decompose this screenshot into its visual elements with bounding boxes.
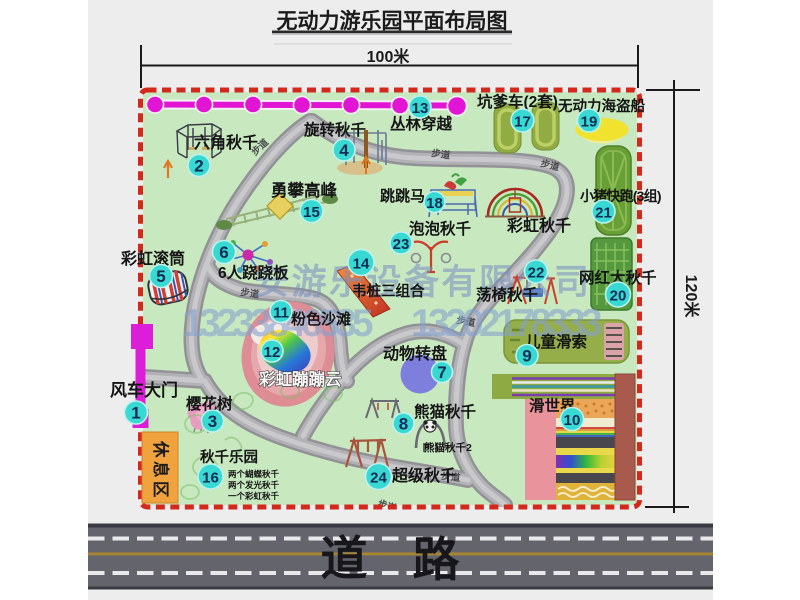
svg-text:3: 3 <box>208 412 217 431</box>
svg-text:两个发光秋千: 两个发光秋千 <box>228 480 280 490</box>
svg-text:两个蝴蝶秋千: 两个蝴蝶秋千 <box>228 469 280 479</box>
svg-text:20: 20 <box>610 288 627 305</box>
svg-text:勇攀高峰: 勇攀高峰 <box>271 180 338 200</box>
svg-text:8: 8 <box>399 415 408 434</box>
svg-text:彩虹蹦蹦云: 彩虹蹦蹦云 <box>258 369 342 389</box>
svg-text:22: 22 <box>528 265 545 282</box>
svg-text:风车大门: 风车大门 <box>110 380 178 400</box>
svg-text:6人跷跷板: 6人跷跷板 <box>218 263 289 282</box>
svg-text:彩虹滚筒: 彩虹滚筒 <box>120 249 185 268</box>
svg-text:21: 21 <box>595 205 612 222</box>
svg-text:100米: 100米 <box>367 47 411 66</box>
svg-text:18: 18 <box>426 195 443 212</box>
svg-text:彩虹秋千: 彩虹秋千 <box>506 216 571 235</box>
svg-text:道: 道 <box>321 532 368 585</box>
svg-text:10: 10 <box>564 412 581 429</box>
svg-text:泡泡秋千: 泡泡秋千 <box>409 219 472 238</box>
svg-text:无动力海盗船: 无动力海盗船 <box>558 97 645 115</box>
svg-text:7: 7 <box>437 363 446 382</box>
svg-text:韦桩三组合: 韦桩三组合 <box>352 282 425 300</box>
svg-text:15: 15 <box>303 204 320 221</box>
svg-text:粉色沙滩: 粉色沙滩 <box>291 310 351 328</box>
svg-text:2: 2 <box>194 157 203 176</box>
svg-text:熊猫秋千2: 熊猫秋千2 <box>424 441 472 454</box>
svg-text:1: 1 <box>131 404 140 423</box>
svg-text:六角秋千: 六角秋千 <box>194 133 258 152</box>
svg-text:荡椅秋千: 荡椅秋千 <box>476 285 539 304</box>
svg-text:路: 路 <box>413 533 461 586</box>
svg-text:24: 24 <box>370 470 387 487</box>
svg-text:5: 5 <box>156 267 165 286</box>
svg-text:11: 11 <box>273 305 289 322</box>
svg-text:跳跳马: 跳跳马 <box>380 187 425 205</box>
svg-text:14: 14 <box>353 256 370 273</box>
svg-text:4: 4 <box>339 141 349 160</box>
svg-text:秋千乐园: 秋千乐园 <box>200 448 258 466</box>
svg-text:6: 6 <box>219 243 228 262</box>
svg-text:旋转秋千: 旋转秋千 <box>303 120 367 139</box>
svg-text:17: 17 <box>514 114 531 131</box>
svg-text:坑爹车(2套): 坑爹车(2套) <box>477 92 558 111</box>
svg-text:休息区: 休息区 <box>151 440 171 501</box>
svg-text:熊猫秋千: 熊猫秋千 <box>414 402 477 421</box>
svg-text:超级秋千: 超级秋千 <box>391 466 456 485</box>
svg-text:23: 23 <box>393 236 410 253</box>
svg-text:12: 12 <box>264 344 281 361</box>
svg-text:一个彩虹秋千: 一个彩虹秋千 <box>228 491 280 501</box>
svg-text:13: 13 <box>412 100 429 117</box>
svg-text:无动力游乐园平面布局图: 无动力游乐园平面布局图 <box>277 9 508 33</box>
svg-text:19: 19 <box>581 114 598 131</box>
svg-text:动物转盘: 动物转盘 <box>383 344 447 363</box>
svg-text:9: 9 <box>522 347 531 366</box>
svg-text:16: 16 <box>202 470 219 487</box>
svg-text:120米: 120米 <box>682 275 701 319</box>
svg-text:小猪快跑(3组): 小猪快跑(3组) <box>580 188 661 204</box>
